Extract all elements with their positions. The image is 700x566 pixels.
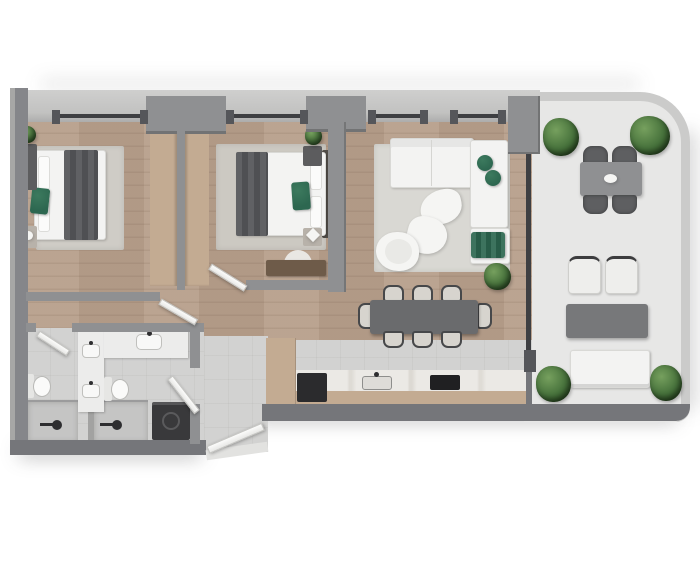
terrace-sliding-glass [526,154,531,352]
outdoor-chair [612,195,637,214]
bath2-entry-wall [190,332,200,368]
bed-pillow [310,196,322,228]
bathroom-top-wall [72,323,204,332]
dining-chair [383,331,404,348]
kitchen-counter [296,370,528,391]
planter-plant [650,365,682,401]
toilet-bowl [33,376,51,397]
wall-post [300,110,308,124]
living-plant [484,263,511,290]
green-throw [291,181,311,210]
kitchen-cooktop [430,375,460,390]
vanity-sink [136,334,162,350]
kitchen-tall-cabinet [266,338,296,412]
bedroom1-bed [34,150,106,240]
bedroom1-window [60,114,140,118]
bathroom-top-wall [26,323,36,332]
sofa-cushion-line [431,140,432,186]
green-throw [30,187,51,215]
table-kettle [604,174,617,183]
washer-door [162,412,180,430]
planter-plant [543,118,579,156]
planter-plant [536,366,571,402]
shadow [40,80,640,88]
sofa-back-section [390,138,474,188]
foot-bench [266,260,326,276]
wall-post [420,110,428,124]
bed-pillow [38,156,50,190]
wardrobe-divider-wall [177,122,185,290]
bedroom2-nightstand [303,146,322,166]
outdoor-chair [583,195,608,214]
left-wall [10,88,28,452]
floor-plan [0,0,700,566]
bedroom1-hall-wall [26,292,160,301]
shower-handle [40,423,54,426]
green-cushion [477,155,493,171]
vanity-sink [82,344,100,358]
kitchen-sink [362,376,392,390]
planter-plant [630,116,670,155]
bedroom2-wardrobe [185,124,209,286]
vanity-faucet [89,341,93,345]
lounge-chair [605,256,638,294]
ottoman-green-throw [471,232,505,258]
armchair-seat [385,239,412,264]
bedroom2-living-wall [328,122,346,292]
wall-post [368,110,376,124]
wall-post [226,110,234,124]
bottom-wall [262,404,690,421]
bottom-wall-bath-block [10,440,206,455]
bed-blanket [236,152,268,236]
wall-bulkhead [146,96,226,134]
living-window-a [376,114,420,118]
dining-table [370,300,478,334]
outdoor-sofa [570,350,650,388]
wall-post [498,110,506,124]
kitchen-end-wall [526,372,532,406]
bedroom1-wardrobe [150,124,177,286]
outdoor-coffee-table [566,304,648,338]
wall-post [52,110,60,124]
shower-handle [100,423,114,426]
corner-wall [508,96,540,154]
wall-post [140,110,148,124]
wall-post [450,110,458,124]
dining-chair [412,331,433,348]
bed-blanket [64,150,98,240]
green-cushion [485,170,501,186]
sink-faucet [374,372,379,377]
dining-chair [441,331,462,348]
wall-post [524,350,536,372]
bedroom2-window [234,114,300,118]
kitchen-dark-basin [297,373,327,402]
toilet-bowl [111,379,129,400]
dining-chair [477,303,492,329]
shower-glass [28,400,78,402]
vanity-sink [82,384,100,398]
vanity-faucet [89,381,93,385]
bedroom2-hall-wall [246,280,328,290]
lounge-chair [568,256,601,294]
living-window-b [458,114,498,118]
